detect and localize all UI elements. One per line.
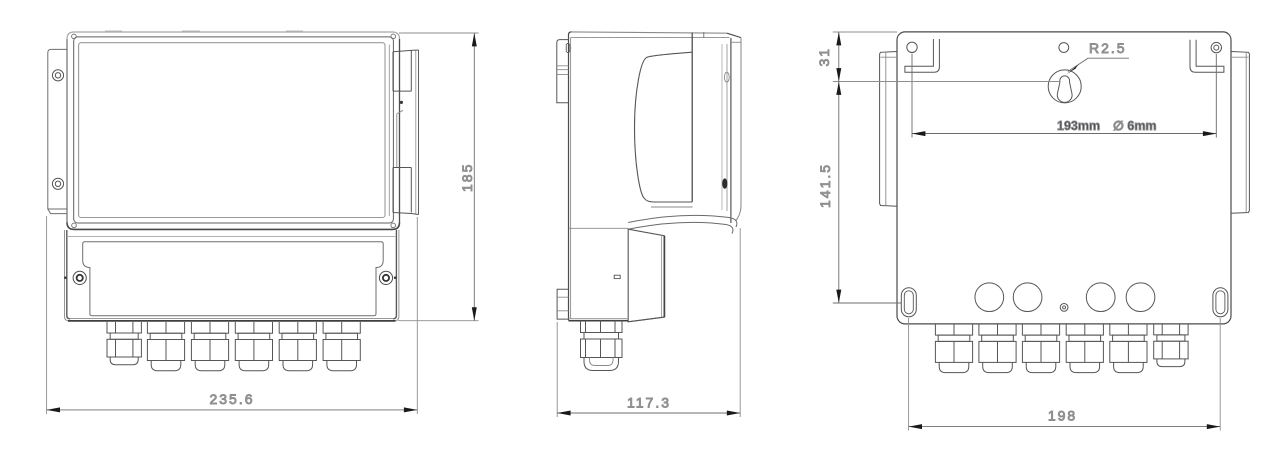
svg-text:R2.5: R2.5 bbox=[1089, 40, 1127, 56]
svg-text:141.5: 141.5 bbox=[817, 163, 833, 208]
svg-text:235.6: 235.6 bbox=[209, 391, 254, 407]
svg-text:193mm: 193mm bbox=[1057, 119, 1100, 133]
svg-text:198: 198 bbox=[1048, 408, 1077, 424]
svg-text:31: 31 bbox=[816, 47, 832, 67]
svg-text:∅ 6mm: ∅ 6mm bbox=[1113, 119, 1157, 133]
svg-text:185: 185 bbox=[459, 163, 475, 192]
svg-text:117.3: 117.3 bbox=[627, 395, 671, 411]
